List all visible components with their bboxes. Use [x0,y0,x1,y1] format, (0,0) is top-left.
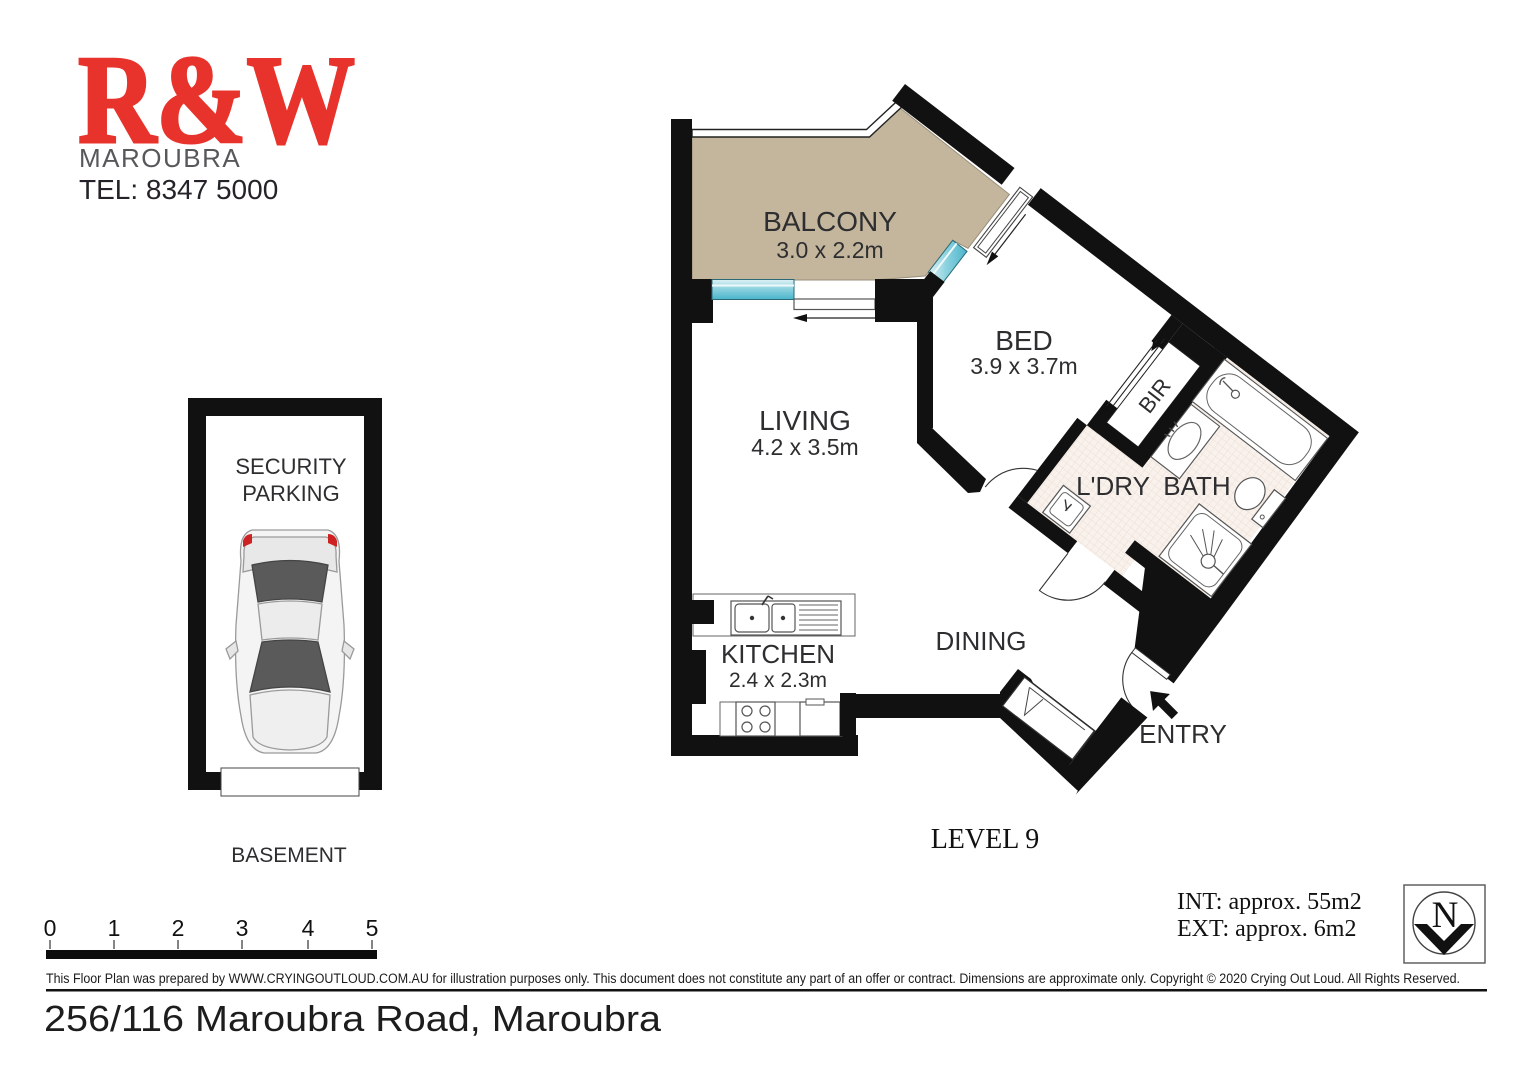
svg-text:1: 1 [108,915,121,941]
svg-text:0: 0 [44,915,57,941]
svg-text:256/116 Maroubra Road, Maroubr: 256/116 Maroubra Road, Maroubra [44,998,662,1039]
svg-text:4: 4 [302,915,315,941]
svg-text:MAROUBRA: MAROUBRA [79,143,241,173]
svg-text:3: 3 [236,915,249,941]
svg-text:5: 5 [366,915,379,941]
svg-text:3.0 x 2.2m: 3.0 x 2.2m [776,237,883,263]
svg-text:SECURITY: SECURITY [235,454,347,479]
svg-text:TEL: 8347 5000: TEL: 8347 5000 [79,174,278,205]
svg-text:DINING: DINING [936,626,1027,656]
svg-text:KITCHEN: KITCHEN [721,639,835,669]
svg-text:LEVEL 9: LEVEL 9 [931,824,1040,855]
svg-text:4.2 x 3.5m: 4.2 x 3.5m [751,434,858,460]
svg-text:LIVING: LIVING [759,405,851,436]
svg-text:BATH: BATH [1163,471,1230,501]
svg-text:2.4 x 2.3m: 2.4 x 2.3m [729,669,827,692]
svg-text:3.9 x 3.7m: 3.9 x 3.7m [970,353,1077,379]
svg-text:BASEMENT: BASEMENT [231,844,347,867]
svg-text:INT: approx. 55m2: INT: approx. 55m2 [1177,889,1362,915]
svg-text:ENTRY: ENTRY [1139,719,1227,749]
svg-text:PARKING: PARKING [242,481,339,506]
svg-text:2: 2 [172,915,185,941]
svg-text:BED: BED [995,325,1053,356]
svg-text:BALCONY: BALCONY [763,206,897,237]
svg-text:N: N [1432,895,1459,936]
svg-text:L'DRY: L'DRY [1076,471,1150,501]
svg-text:EXT: approx. 6m2: EXT: approx. 6m2 [1177,916,1356,942]
svg-text:This Floor Plan was prepared b: This Floor Plan was prepared by WWW.CRYI… [46,971,1460,986]
